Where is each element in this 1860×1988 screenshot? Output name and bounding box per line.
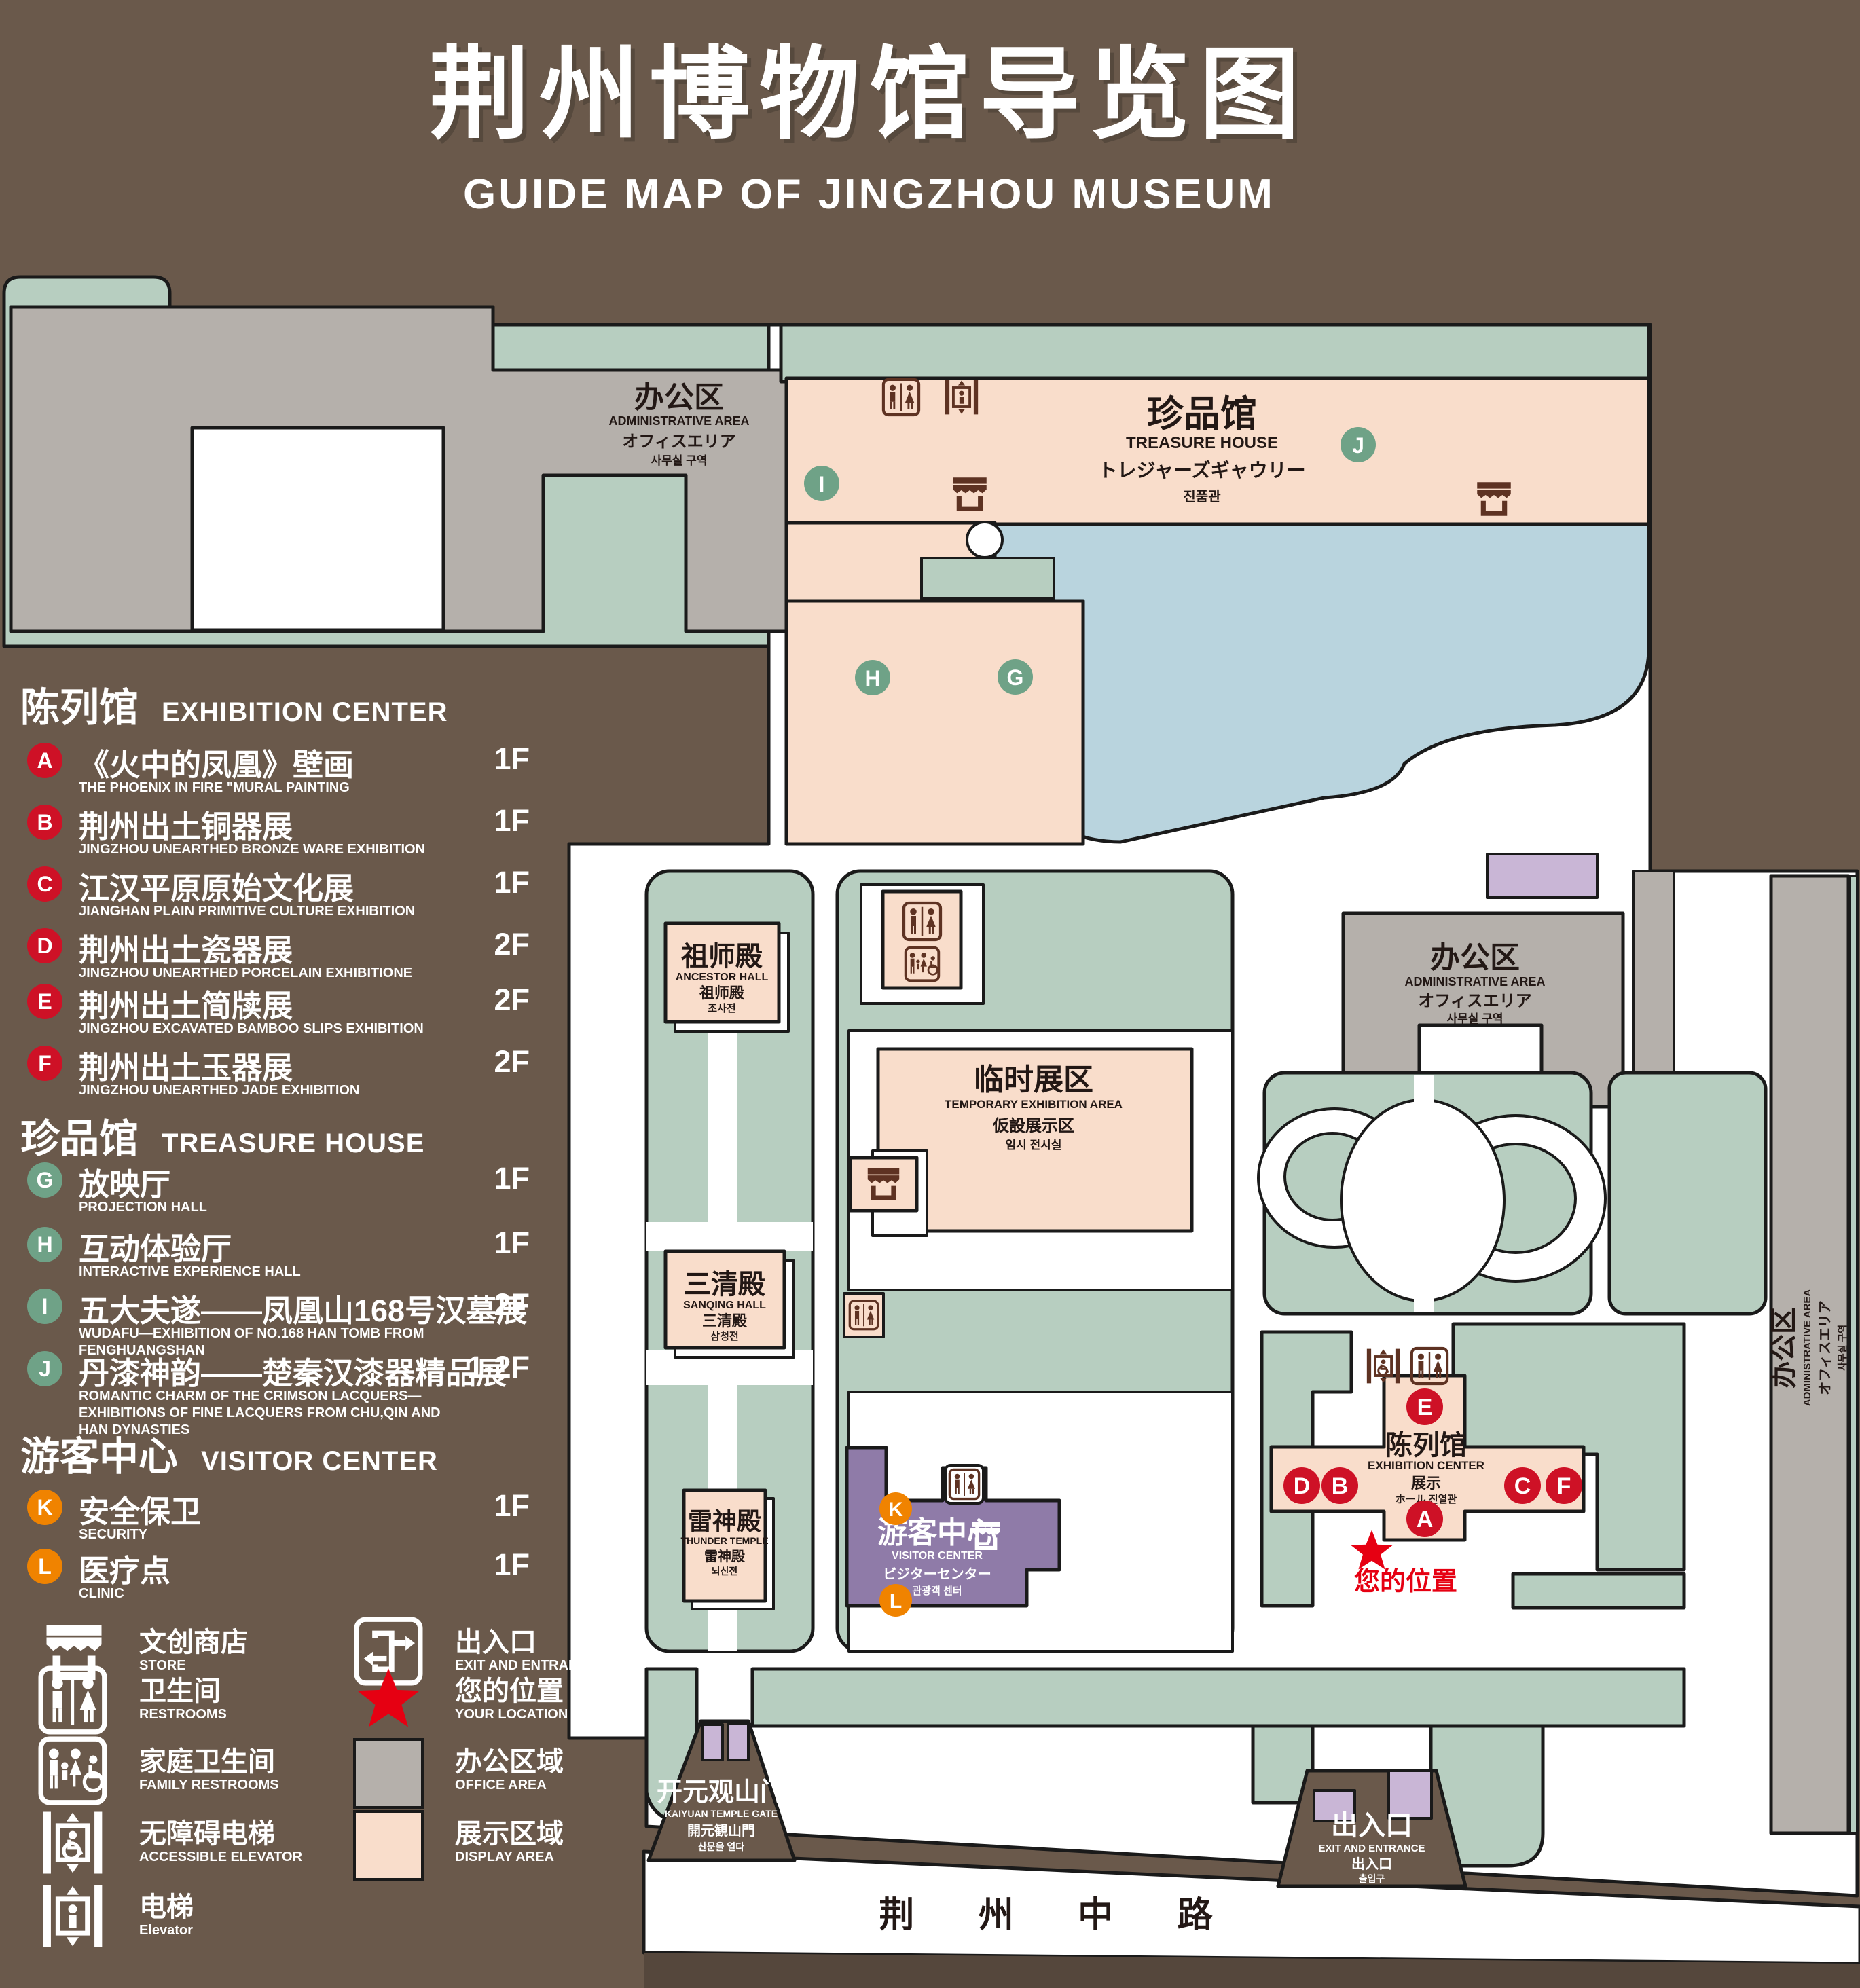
- legend-item-g: G 放映厅 PROJECTION HALL 1F: [27, 1160, 530, 1222]
- elevator-icon: [37, 1881, 108, 1951]
- legend-item-j: J 丹漆神韵——楚秦汉漆器精品展 ROMANTIC CHARM OF THE C…: [27, 1348, 530, 1430]
- legend-item-d: D 荆州出土瓷器展 JINGZHOU UNEARTHED PORCELAIN E…: [27, 925, 530, 988]
- badge-d: D: [27, 928, 62, 963]
- family-restroom-icon: [37, 1735, 108, 1806]
- accessible-elevator-icon: [37, 1807, 108, 1878]
- legend-item-f: F 荆州出土玉器展 JINGZHOU UNEARTHED JADE EXHIBI…: [27, 1043, 530, 1105]
- section-title-zh: 陈列馆: [20, 676, 139, 733]
- legend-item-i: I 五大夫遂——凤凰山168号汉墓展 WUDAFU—EXHIBITION OF …: [27, 1286, 530, 1348]
- office-area-swatch: [353, 1738, 424, 1809]
- badge-h: H: [27, 1227, 62, 1262]
- section-title-en: EXHIBITION CENTER: [162, 697, 448, 728]
- badge-a: A: [27, 743, 62, 778]
- your-location-star: [353, 1665, 424, 1735]
- legend-item-h: H 互动体验厅 INTERACTIVE EXPERIENCE HALL 1F: [27, 1224, 530, 1287]
- badge-f: F: [27, 1046, 62, 1081]
- legend-item-a: A 《火中的凤凰》壁画 THE PHOENIX IN FIRE "MURAL P…: [27, 740, 530, 803]
- badge-e: E: [27, 984, 62, 1019]
- legend-section-exhibition: 陈列馆 EXHIBITION CENTER: [20, 676, 448, 733]
- page-title: 荆州博物馆导览图: [0, 12, 1738, 158]
- badge-c: C: [27, 866, 62, 902]
- restroom-icon: [37, 1665, 108, 1735]
- legend-item-b: B 荆州出土铜器展 JINGZHOU UNEARTHED BRONZE WARE…: [27, 802, 530, 864]
- legend-item-l: L 医疗点 CLINIC 1F: [27, 1546, 530, 1608]
- guide-map-page: 办公区 ADMINISTRATIVE AREA オフィスエリア 사무실 구역 珍…: [0, 0, 1860, 1988]
- display-area-swatch: [353, 1810, 424, 1881]
- page-header: 荆州博物馆导览图 GUIDE MAP OF JINGZHOU MUSEUM: [0, 12, 1738, 219]
- legend-item-e: E 荆州出土简牍展 JINGZHOU EXCAVATED BAMBOO SLIP…: [27, 981, 530, 1044]
- badge-g: G: [27, 1162, 62, 1198]
- badge-l: L: [27, 1549, 62, 1584]
- badge-k: K: [27, 1490, 62, 1525]
- badge-i: I: [27, 1289, 62, 1324]
- badge-j: J: [27, 1351, 62, 1386]
- page-subtitle: GUIDE MAP OF JINGZHOU MUSEUM: [0, 170, 1738, 219]
- legend-section-treasure: 珍品馆 TREASURE HOUSE: [20, 1107, 424, 1164]
- legend-item-k: K 安全保卫 SECURITY 1F: [27, 1487, 530, 1549]
- badge-b: B: [27, 805, 62, 840]
- legend-section-visitor: 游客中心 VISITOR CENTER: [20, 1424, 438, 1481]
- legend: 陈列馆 EXHIBITION CENTER A 《火中的凤凰》壁画 THE PH…: [0, 0, 1860, 1988]
- legend-item-c: C 江汉平原原始文化展 JIANGHAN PLAIN PRIMITIVE CUL…: [27, 864, 530, 926]
